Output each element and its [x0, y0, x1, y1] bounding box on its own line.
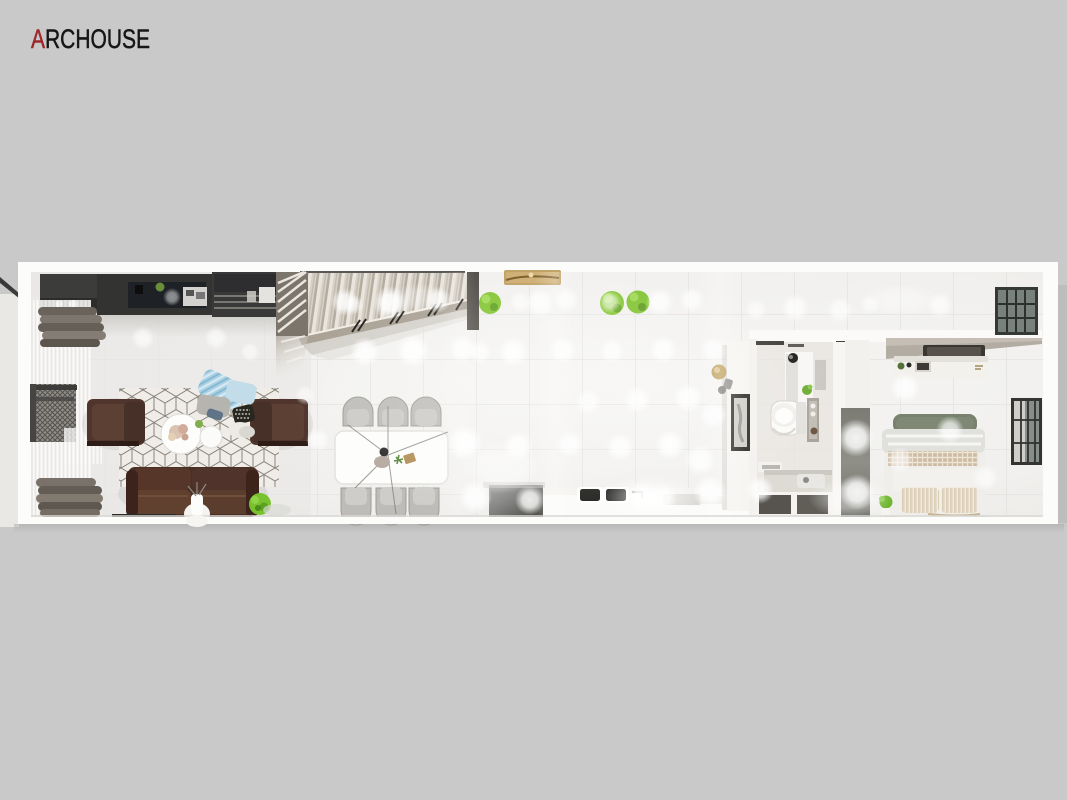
svg-text:ARCHOUSE: ARCHOUSE: [31, 24, 150, 54]
